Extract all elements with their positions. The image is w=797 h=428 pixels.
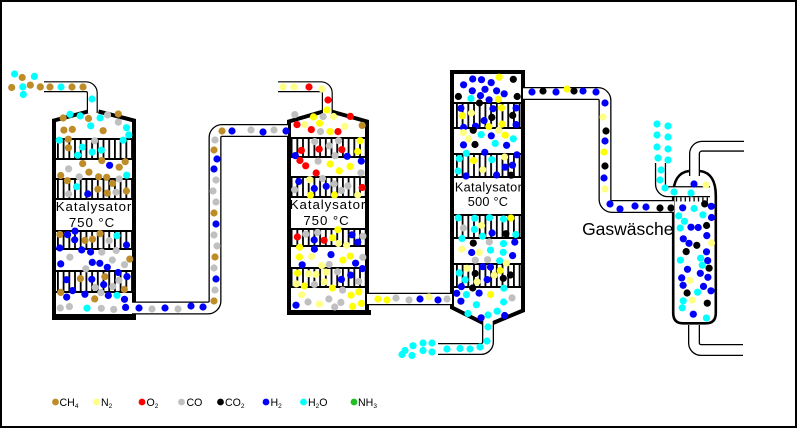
- svg-text:500 °C: 500 °C: [468, 195, 508, 209]
- svg-text:Gaswäsche: Gaswäsche: [582, 219, 673, 239]
- svg-text:Katalysator: Katalysator: [56, 199, 132, 214]
- svg-text:CO: CO: [187, 397, 203, 409]
- svg-text:Katalysator: Katalysator: [290, 197, 366, 212]
- svg-text:Katalysator: Katalysator: [455, 180, 523, 194]
- svg-text:750 °C: 750 °C: [303, 213, 349, 228]
